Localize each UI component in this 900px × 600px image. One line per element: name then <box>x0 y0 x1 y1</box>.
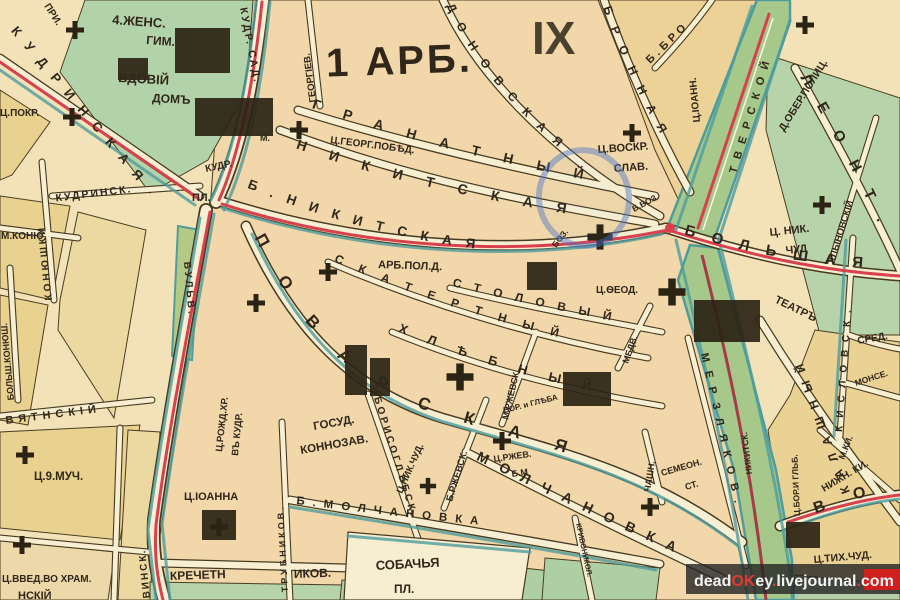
building-block <box>694 300 760 342</box>
place-label-c-feod: Ц.ѲЕОД. <box>596 285 638 296</box>
place-label-gymnasium-2: ГИМ. <box>146 33 176 49</box>
place-label-vdoviy-1: ВДОВIЙ <box>118 70 170 88</box>
place-label-m: М. <box>260 133 270 143</box>
district-title: 1 АРБ. <box>325 36 473 85</box>
watermark: deadOKey.livejournal.com <box>686 564 900 594</box>
place-label-nsky: НСКIЙ <box>18 589 52 600</box>
street-label-ikov: ИКОВ. <box>294 566 332 581</box>
place-label-vdoviy-2: ДОМЪ <box>152 91 192 107</box>
building-block <box>786 522 820 548</box>
place-label-sobachya-pl: ПЛ. <box>394 582 414 596</box>
building-block <box>175 28 230 73</box>
place-label-c-vved: Ц.ВВЕД.ВО ХРАМ. <box>2 574 92 585</box>
city-map: КУДРИНСКАЯ КУДРИНСК. КУДР. САД. ГЕОРГIЕВ… <box>0 0 900 600</box>
green-block <box>150 582 345 600</box>
nikitskie-vorota-junction <box>665 223 675 233</box>
place-label-c-9much: Ц.9.МУЧ. <box>34 471 83 483</box>
street-label-krechetn: КРЕЧЕТН <box>170 567 226 583</box>
place-label-pl: ПЛ. <box>192 192 211 204</box>
sheet-number: IX <box>532 12 576 64</box>
building-block <box>195 98 273 136</box>
place-label-c-ioanna: Ц.IОАННА <box>184 491 238 503</box>
street-label-m-konyu: М.КОНЮ <box>1 231 44 242</box>
building-block <box>527 262 557 290</box>
place-label-c-nik-chud-2: ЧУД <box>785 243 808 257</box>
watermark-text: deadOKey.livejournal.com <box>694 573 894 590</box>
place-label-arb-pol-d: АРБ.ПОЛ.Д. <box>378 259 442 273</box>
place-label-c-pokr: Ц.ПОКР. <box>0 108 39 119</box>
map-canvas: КУДРИНСКАЯ КУДРИНСК. КУДР. САД. ГЕОРГIЕВ… <box>0 0 900 600</box>
